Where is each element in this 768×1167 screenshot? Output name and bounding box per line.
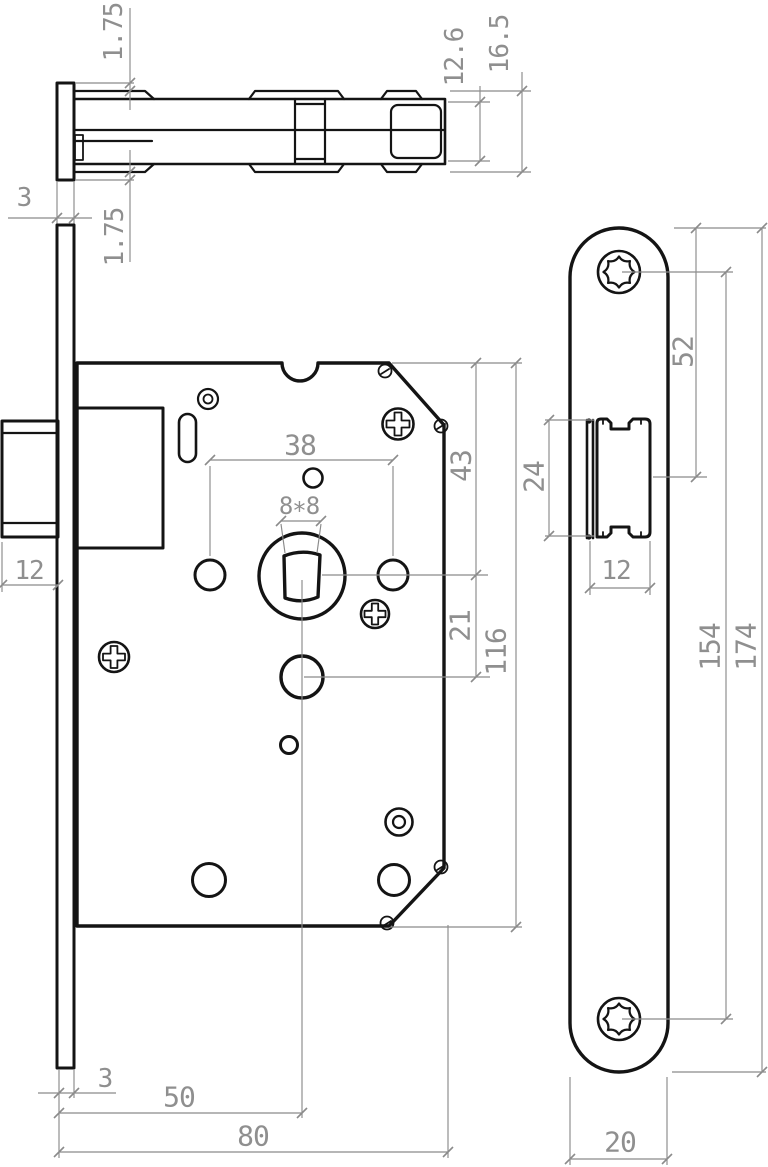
dim-label: 8∗8: [279, 492, 319, 520]
dim-label: 50: [163, 1081, 195, 1114]
cylinder-pin-hole: [304, 469, 323, 488]
latch-body-flanges: [74, 91, 422, 172]
dim-label: 12: [14, 556, 43, 586]
handle-hole-left: [195, 560, 225, 590]
bottom-hole-left: [193, 864, 226, 897]
dim-latch-height: 24: [518, 415, 595, 541]
dim-plate-offset-bottom: 1.75: [76, 150, 135, 266]
phillips-screw-icon: [383, 409, 414, 440]
pivot-pin-top: [198, 389, 218, 409]
dim-label: 154: [694, 623, 727, 671]
dim-label: 16.5: [485, 15, 515, 74]
latch-body-midline: [74, 130, 445, 141]
dim-label: 43: [445, 450, 478, 482]
drawing-sheet: 1.75 1.75 12.6 16.5 3: [0, 0, 768, 1167]
phillips-screw-icon: [99, 642, 129, 672]
dim-label: 1.75: [99, 3, 129, 62]
slot-hole: [179, 414, 196, 462]
front-view-centerlines: [302, 575, 490, 1118]
dim-case-depth: 80: [54, 925, 453, 1158]
dim-label: 21: [444, 610, 477, 642]
latch-guide-box: [77, 408, 163, 548]
dim-plate-offset-top: 1.75: [76, 3, 135, 110]
dim-case-height: 116: [480, 358, 522, 932]
dim-label: 174: [730, 623, 763, 671]
technical-drawing: 1.75 1.75 12.6 16.5 3: [0, 0, 768, 1167]
front-view: [2, 225, 448, 1068]
dim-label: 20: [604, 1126, 636, 1159]
dim-latch-protrusion: 12: [0, 542, 63, 592]
top-view: [57, 83, 445, 180]
latch-bolt-side: [2, 421, 58, 537]
dim-top-to-latch-center: 52: [653, 223, 707, 482]
small-pin-hole: [281, 737, 298, 754]
dim-faceplate-thickness: 3: [38, 1064, 116, 1158]
dim-plate-width: 20: [565, 1077, 672, 1165]
dim-latch-width: 12: [585, 541, 655, 595]
pivot-pin-bottom: [386, 809, 413, 836]
latch-stop-detail: [75, 135, 83, 160]
faceplate-strip: [57, 225, 74, 1068]
latch-head-section: [391, 105, 441, 158]
dim-faceplate-thickness-top: 3: [8, 182, 92, 224]
faceplate-section: [57, 83, 74, 180]
dim-spindle-square: 8∗8: [276, 492, 326, 553]
dim-backset: 50: [54, 1081, 307, 1119]
bottom-hole-right: [379, 865, 410, 896]
dim-label: 3: [98, 1064, 113, 1094]
dim-screw-spacing: 154: [622, 267, 733, 1024]
dim-label: 24: [518, 461, 551, 493]
spindle-column-section: [295, 99, 325, 164]
dim-label: 38: [284, 429, 316, 462]
dim-label: 1.75: [100, 208, 130, 267]
dim-label: 80: [237, 1120, 269, 1153]
dim-label: 12.6: [440, 28, 470, 87]
phillips-screw-icon: [361, 600, 389, 628]
latch-bolt-front: [586, 418, 650, 539]
faceplate-outline: [570, 228, 668, 1072]
dim-label: 12: [601, 556, 630, 586]
lock-case-outline: [77, 363, 444, 926]
side-view: [570, 228, 668, 1072]
dim-latch-head-height: 12.6: [440, 28, 490, 166]
dim-label: 3: [17, 183, 32, 213]
dim-label: 52: [667, 336, 700, 368]
dim-label: 116: [480, 628, 513, 676]
corner-screw-icon: [379, 365, 448, 930]
